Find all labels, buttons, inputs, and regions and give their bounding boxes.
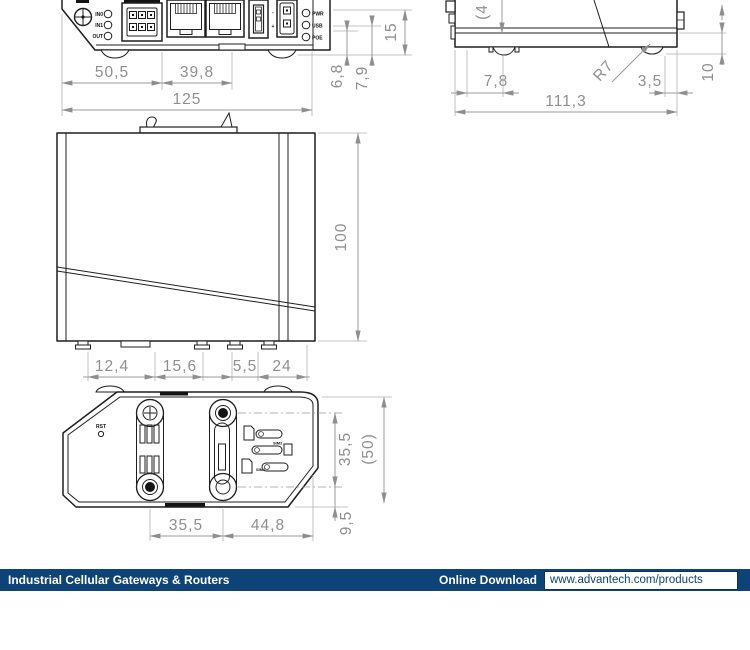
dim-12-4: 12,4 [95, 358, 129, 375]
io-terminal-connector [122, 0, 162, 41]
footer-bar: Industrial Cellular Gateways & Routers O… [0, 569, 750, 591]
eth1-port [206, 0, 244, 37]
dim-5-5: 5,5 [233, 358, 258, 375]
dim-7-8: 7,8 [484, 73, 509, 90]
led-label-pwr: PWR [312, 12, 324, 18]
dim-h-35-5: 35,5 [169, 517, 203, 534]
dim-6-8: 6,8 [329, 64, 346, 89]
din-clip-hook [221, 113, 232, 127]
usb-port [249, 0, 268, 38]
front-view: 100 12,4 15,6 5,5 24 [57, 113, 367, 381]
datasheet-drawing-page: IN0 IN1 OUT [0, 0, 750, 650]
foot [96, 386, 124, 392]
device-outline [63, 392, 318, 507]
download-url: www.advantech.com/products [550, 574, 703, 586]
din-clip [140, 127, 237, 133]
dim-125: 125 [173, 91, 202, 108]
device-outline [57, 133, 315, 341]
dim-44-8: 44,8 [251, 517, 285, 534]
dim-15-6: 15,6 [163, 358, 197, 375]
reset-label: RST [96, 424, 106, 430]
bottom-notch [219, 44, 245, 50]
bottom-view: RST SIM2 SIM1 35,5 (50) [63, 386, 392, 541]
top-panel-view: IN0 IN1 OUT [62, 0, 412, 116]
polarity-plus: + [272, 24, 275, 30]
dim-111-3: 111,3 [545, 93, 587, 110]
dim-4-partial: (4 [474, 4, 491, 20]
footer-category-title: Industrial Cellular Gateways & Routers [8, 573, 229, 587]
dim-50-5: 50,5 [95, 64, 129, 81]
foot [493, 47, 515, 55]
sim2-label: SIM2 [273, 441, 283, 446]
dim-v-35-5: 35,5 [337, 432, 354, 466]
foot [268, 50, 296, 58]
led-label-out: OUT [92, 34, 103, 40]
dim-39-8: 39,8 [180, 64, 214, 81]
foot [641, 47, 663, 54]
foot [101, 50, 129, 58]
download-url-box: www.advantech.com/products [544, 571, 738, 590]
led-label-usb: USB [312, 24, 323, 30]
dim-10: 10 [700, 62, 717, 81]
dim-100: 100 [333, 223, 350, 252]
online-download-label: Online Download [439, 573, 537, 587]
side-view: (4 R7 7,8 3,5 111,3 [446, 0, 726, 116]
foot [264, 386, 292, 392]
dim-9-5: 9,5 [338, 511, 355, 536]
led-label-in0: IN0 [95, 12, 103, 18]
dimension-drawing: IN0 IN1 OUT [0, 0, 750, 650]
din-clip-hook [147, 117, 157, 127]
eth0-port [167, 0, 205, 37]
bottom-feet [76, 341, 277, 349]
led-label-in1: IN1 [95, 23, 103, 29]
dim-24: 24 [272, 358, 291, 375]
dim-7-9: 7,9 [354, 66, 371, 91]
dim-50-ref: (50) [360, 433, 377, 465]
dim-3-5: 3,5 [638, 73, 663, 90]
dim-15: 15 [383, 22, 400, 41]
led-label-poe: POE [312, 36, 323, 42]
